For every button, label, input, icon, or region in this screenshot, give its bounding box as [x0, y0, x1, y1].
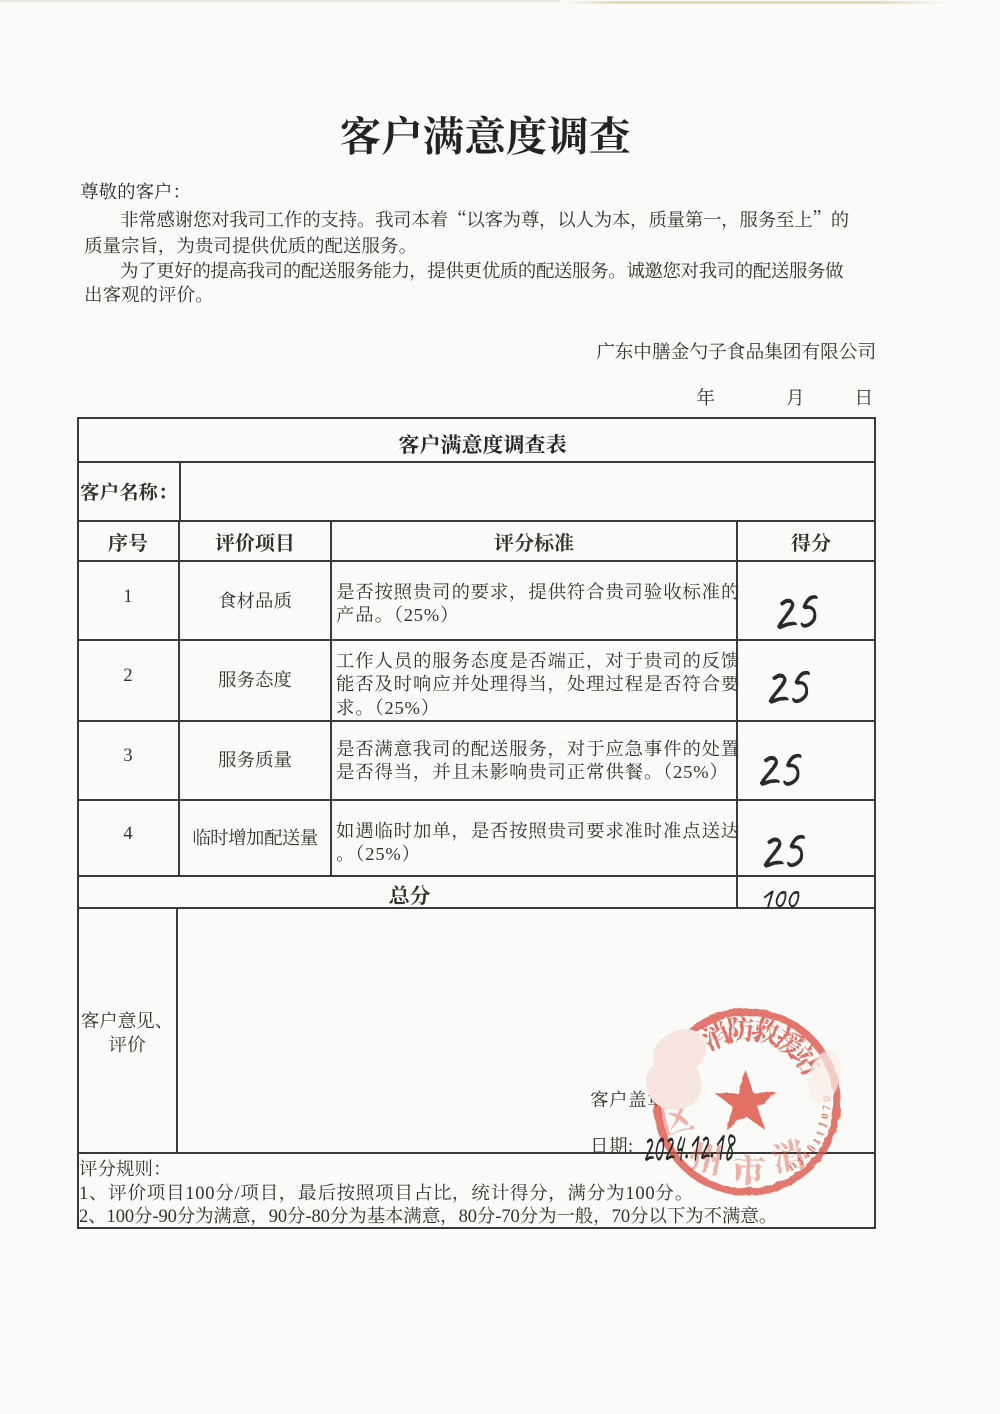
svg-text:1: 1: [817, 1121, 830, 1130]
svg-text:市: 市: [731, 1144, 765, 1193]
svg-text:1: 1: [814, 1129, 827, 1139]
svg-text:7: 7: [821, 1104, 833, 1111]
svg-text:0: 0: [819, 1112, 832, 1120]
